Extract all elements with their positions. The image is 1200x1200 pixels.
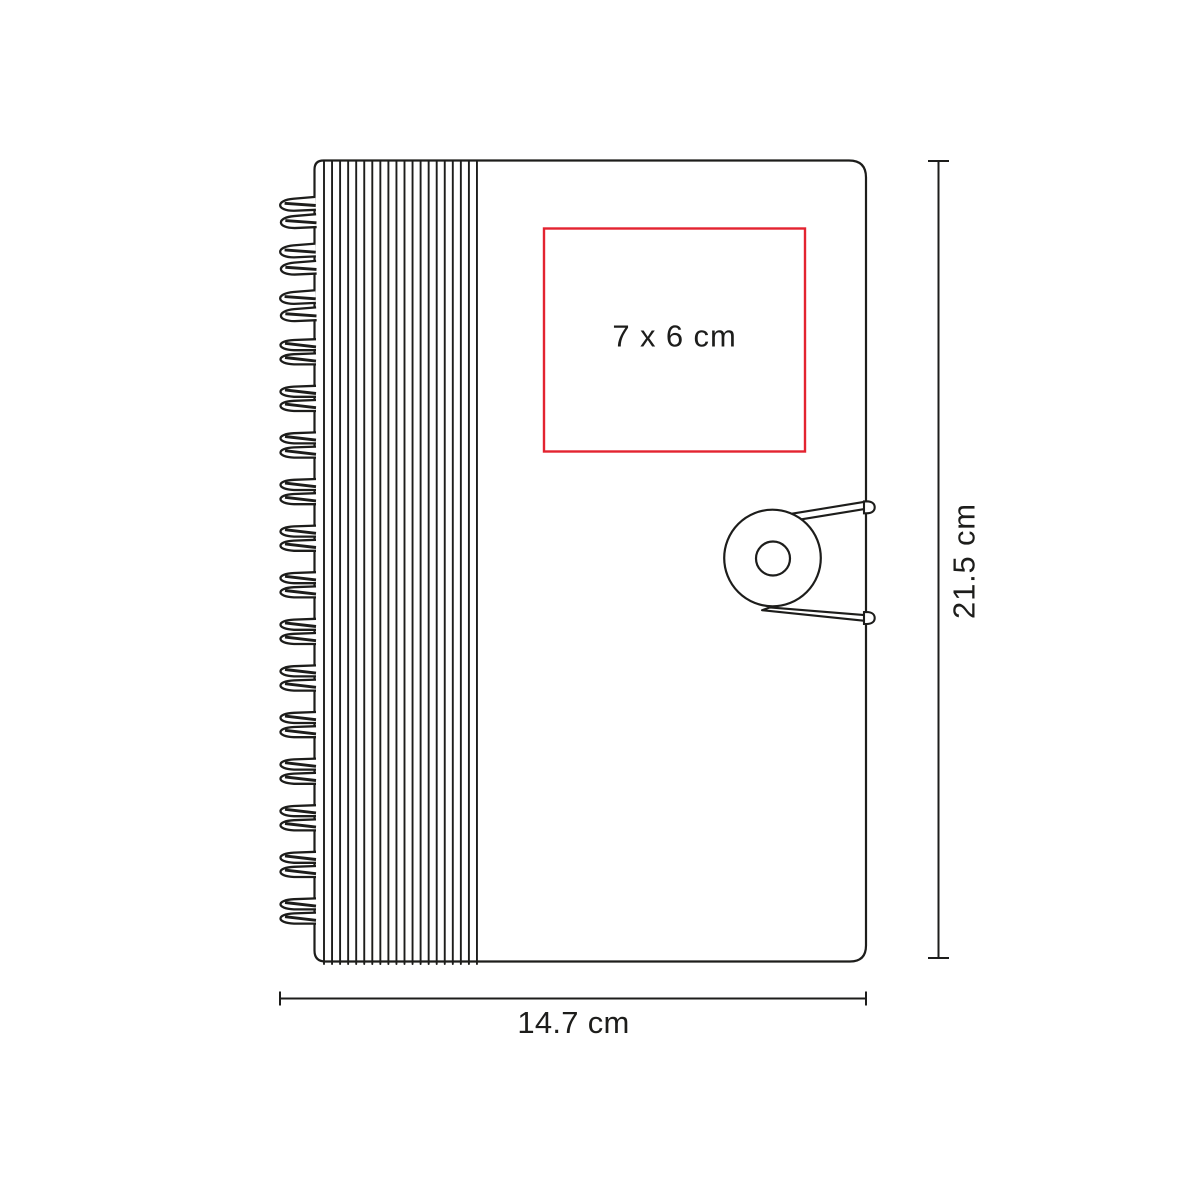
- svg-text:14.7 cm: 14.7 cm: [517, 1005, 629, 1040]
- svg-text:7 x 6 cm: 7 x 6 cm: [612, 319, 736, 354]
- svg-text:21.5 cm: 21.5 cm: [947, 503, 982, 619]
